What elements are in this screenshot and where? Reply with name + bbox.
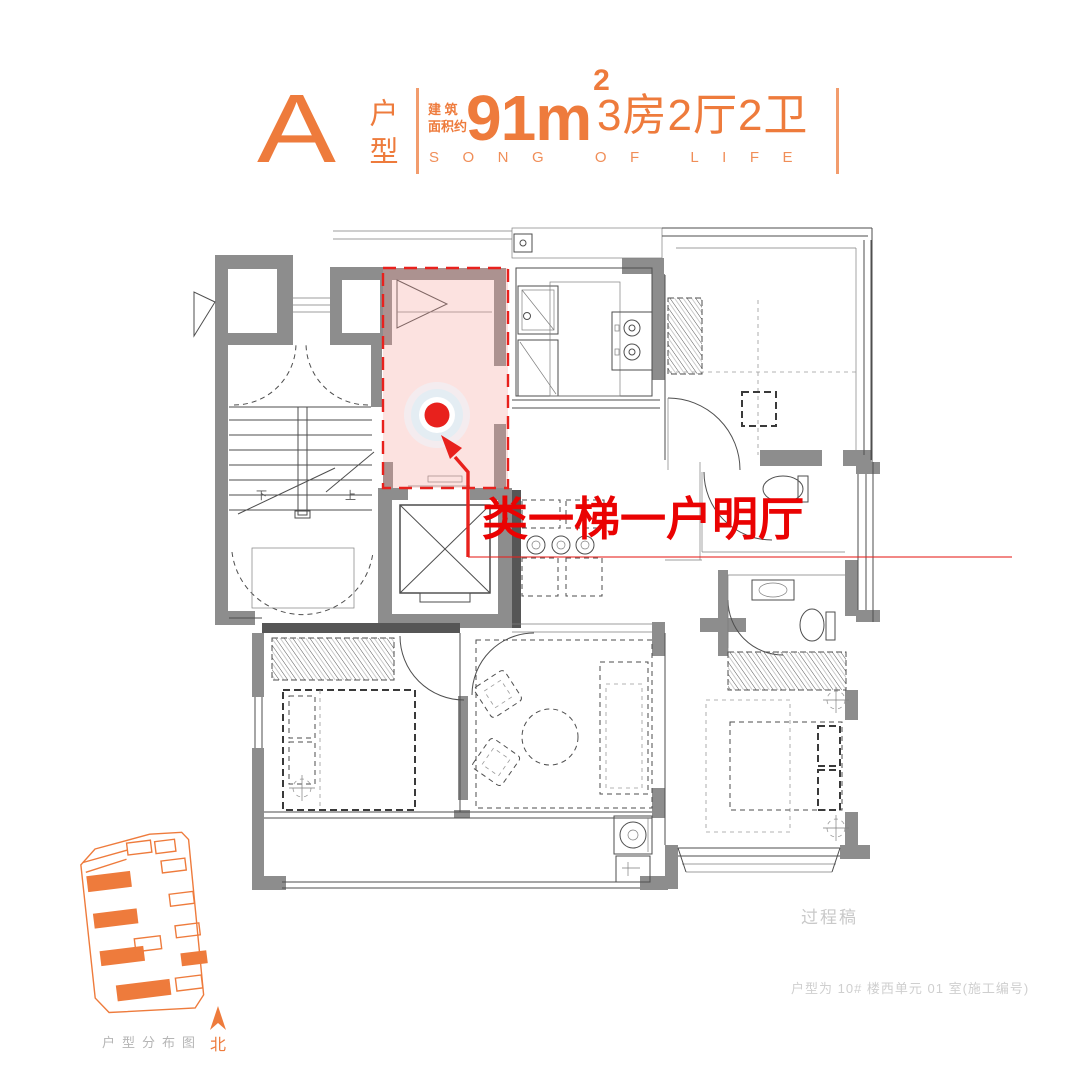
door-swing	[668, 398, 740, 470]
rug-outline	[706, 700, 790, 832]
north-arrow-icon	[210, 1006, 226, 1030]
north-compass: 北	[210, 1006, 226, 1054]
kitchen	[512, 228, 662, 408]
entry-door-swing-icon	[194, 292, 215, 336]
wardrobe-icon	[728, 652, 846, 690]
master-bedroom	[665, 633, 849, 872]
bathroom-2	[728, 575, 845, 655]
ceiling-light-icon	[289, 775, 315, 801]
bed-icon	[730, 722, 842, 810]
location-marker-icon	[404, 382, 470, 448]
north-label: 北	[210, 1036, 226, 1054]
bed-icon	[283, 690, 415, 810]
stove-icon	[612, 312, 652, 370]
stair-up-label: 上	[345, 489, 356, 502]
building-footprint	[161, 858, 186, 873]
bedroom-left	[264, 633, 464, 812]
armchair-icon	[471, 737, 521, 787]
building-footprint	[169, 891, 194, 906]
walls	[215, 255, 880, 890]
bay-window-right	[858, 462, 873, 622]
nightstand-icon	[818, 726, 840, 766]
site-plan	[76, 829, 213, 1020]
door-swing	[472, 633, 534, 695]
building-footprint	[180, 950, 207, 966]
floor-plan-svg: 下 上	[0, 0, 1079, 1090]
bath-sink-icon	[752, 580, 794, 600]
nightstand-icon	[818, 770, 840, 810]
round-table-icon	[522, 709, 578, 765]
sitemap-caption: 户型分布图	[102, 1032, 202, 1051]
stair-down-label: 下	[256, 490, 267, 502]
draft-watermark: 过程稿	[801, 903, 858, 928]
living-dining	[471, 624, 652, 808]
building-footprint	[86, 871, 132, 892]
entry-hall-highlight	[383, 268, 508, 488]
armchair-icon	[473, 669, 523, 719]
floorplan-page: A 户型 建 筑 面积约 91m2 3房2厅2卫 SONG OF LIFE	[0, 0, 1079, 1090]
building-footprint	[175, 975, 202, 991]
unit-note: 户型为 10# 楼西单元 01 室(施工编号)	[791, 978, 1029, 997]
elevator	[400, 486, 490, 602]
feature-callout: 类一梯一户明厅	[482, 496, 804, 542]
kitchen-sink-icon	[518, 286, 558, 334]
toilet-icon	[800, 609, 835, 641]
wardrobe-icon	[272, 638, 394, 680]
kitchen-sliding-door	[512, 400, 660, 408]
wardrobe-icon	[668, 298, 702, 374]
building-footprint	[100, 946, 146, 966]
bedroom-top-right	[662, 228, 872, 470]
sofa-icon	[600, 662, 648, 794]
washing-machine-icon	[614, 816, 652, 854]
bay-window-bottom	[678, 848, 840, 872]
building-footprint	[116, 979, 172, 1001]
building-footprint	[93, 908, 139, 928]
